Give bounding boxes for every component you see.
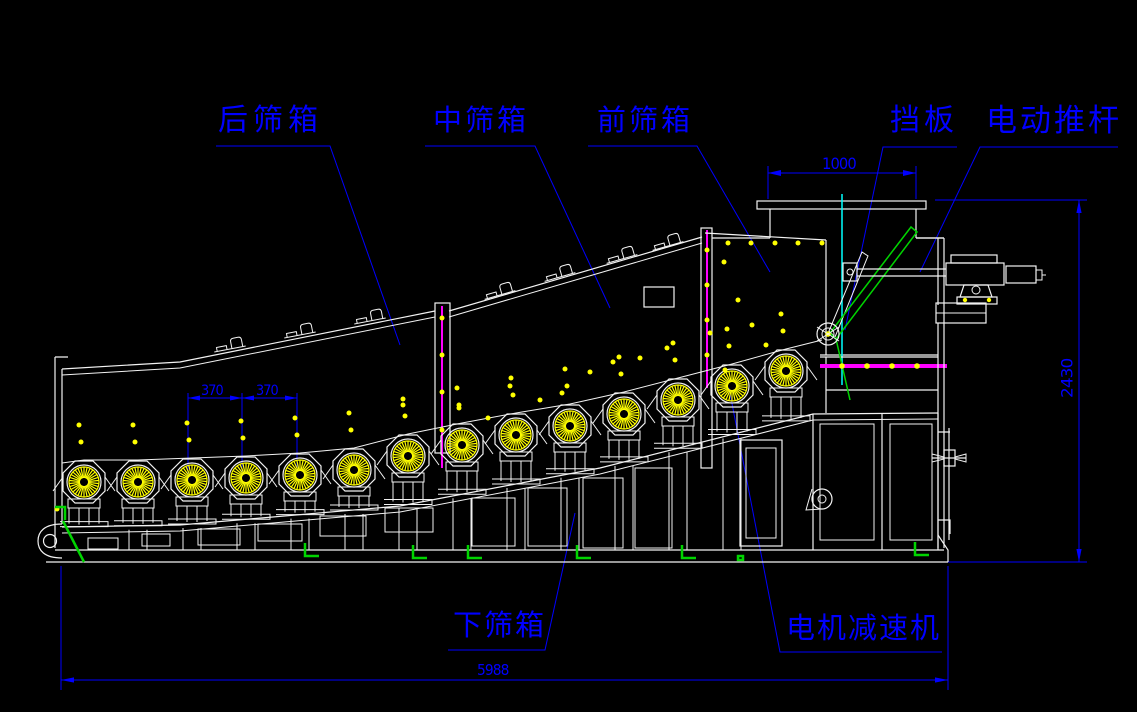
dim-hopper-width: 1000: [822, 156, 856, 172]
label-front-screen-box: 前筛箱: [597, 106, 693, 135]
dim-overall-height: 2430: [1060, 359, 1076, 398]
deck-clamps: [212, 232, 683, 352]
label-motor-reducer: 电机减速机: [786, 614, 941, 643]
base-frame: [38, 413, 948, 562]
green-marks: [55, 507, 929, 562]
baffle-position-2: [830, 227, 917, 339]
feed-hopper: [712, 194, 944, 385]
label-baffle: 挡板: [890, 106, 958, 136]
cad-drawing-canvas: 后筛箱 中筛箱 前筛箱 挡板 电动推杆 下筛箱 电机减速机 1000 370 3…: [0, 0, 1137, 712]
screen-deck-edges: [62, 228, 712, 468]
baffle-pivot: [817, 227, 917, 400]
label-electric-push-rod: 电动推杆: [986, 106, 1122, 137]
dim-roller-spacing-1: 370: [201, 384, 223, 398]
label-middle-screen-box: 中筛箱: [433, 106, 529, 135]
handwheel-icon: [932, 428, 966, 540]
dim-overall-length: 5988: [477, 663, 508, 678]
label-rear-screen-box: 后筛箱: [218, 106, 323, 136]
label-lower-screen-box: 下筛箱: [453, 611, 546, 640]
machine-drawing: [0, 0, 1137, 712]
dim-roller-spacing-2: 370: [256, 384, 278, 398]
baffle-position-1: [829, 252, 868, 337]
